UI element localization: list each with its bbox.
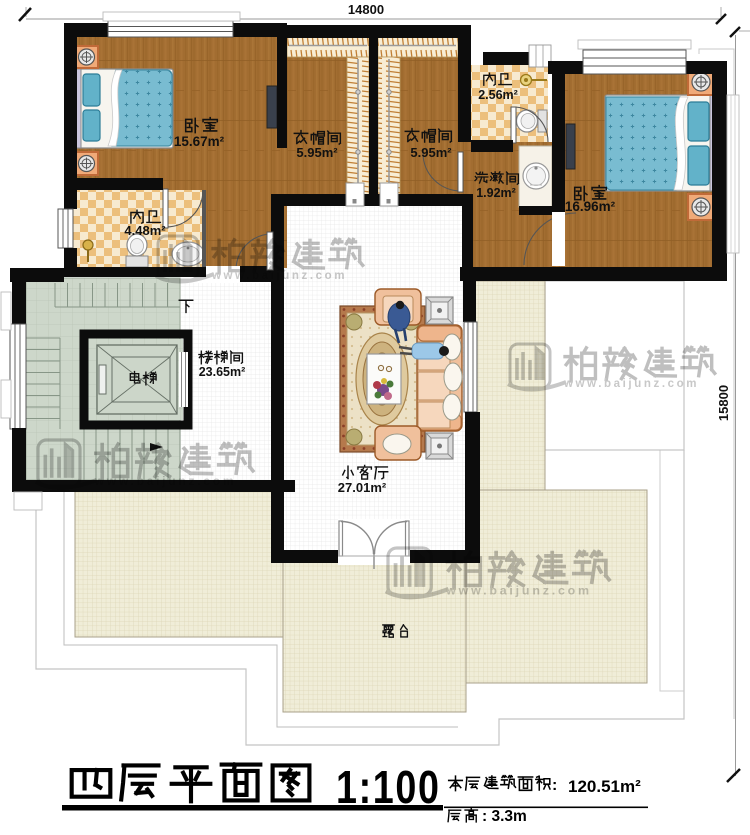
- svg-text:16.96m²: 16.96m²: [565, 199, 616, 214]
- svg-text:15.67m²: 15.67m²: [174, 134, 225, 149]
- svg-text:2.56m²: 2.56m²: [478, 88, 518, 102]
- svg-text:www.baijunz.com: www.baijunz.com: [94, 474, 237, 488]
- svg-text:5.95m²: 5.95m²: [410, 145, 452, 160]
- svg-text::: :: [552, 777, 557, 794]
- svg-text:15800: 15800: [716, 385, 731, 421]
- svg-text:4.48m²: 4.48m²: [124, 223, 166, 238]
- svg-text:: 3.3m: : 3.3m: [482, 808, 527, 825]
- svg-text:www.baijunz.com: www.baijunz.com: [211, 270, 347, 282]
- svg-text:14800: 14800: [348, 2, 384, 17]
- svg-text:www.baijunz.com: www.baijunz.com: [563, 378, 699, 390]
- svg-text:www.baijunz.com: www.baijunz.com: [445, 583, 592, 597]
- svg-text:120.51m²: 120.51m²: [568, 777, 641, 796]
- svg-text:27.01m²: 27.01m²: [338, 480, 387, 495]
- svg-text:5.95m²: 5.95m²: [296, 145, 338, 160]
- svg-text:1.92m²: 1.92m²: [476, 186, 516, 200]
- svg-text:23.65m²: 23.65m²: [199, 365, 246, 379]
